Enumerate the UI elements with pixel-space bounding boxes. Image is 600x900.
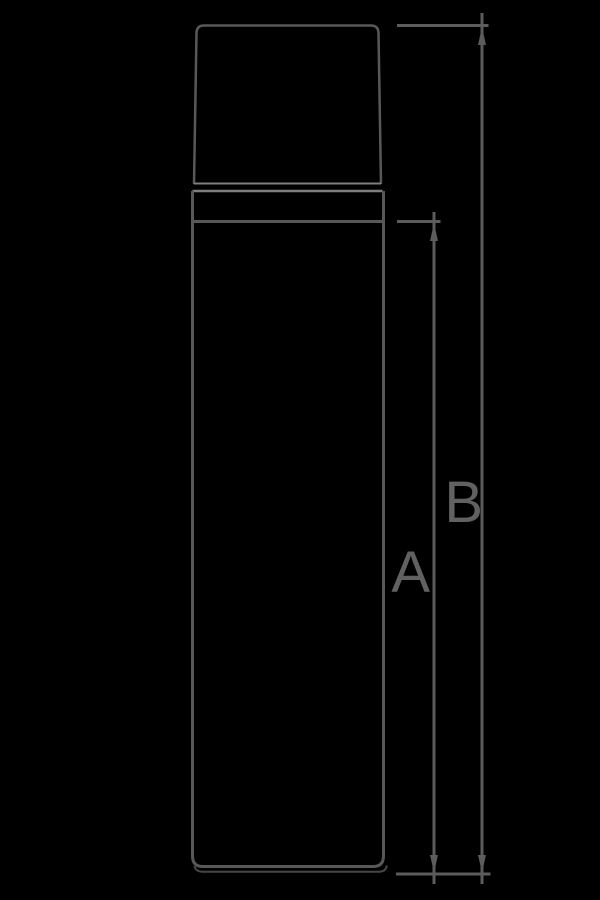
dim-b-label: B [444, 470, 483, 535]
dim-a-arrow-top [430, 223, 438, 241]
bottle-body-outline [193, 191, 384, 867]
dim-a-label: A [391, 540, 430, 605]
drawing-canvas: A B [0, 0, 600, 900]
dim-b-arrow-bottom [478, 855, 486, 873]
bottle-cap-outline [194, 26, 381, 185]
dim-a-arrow-bottom [430, 855, 438, 873]
bottle-dimension-drawing: A B [0, 0, 600, 900]
dim-b-arrow-top [478, 27, 486, 45]
